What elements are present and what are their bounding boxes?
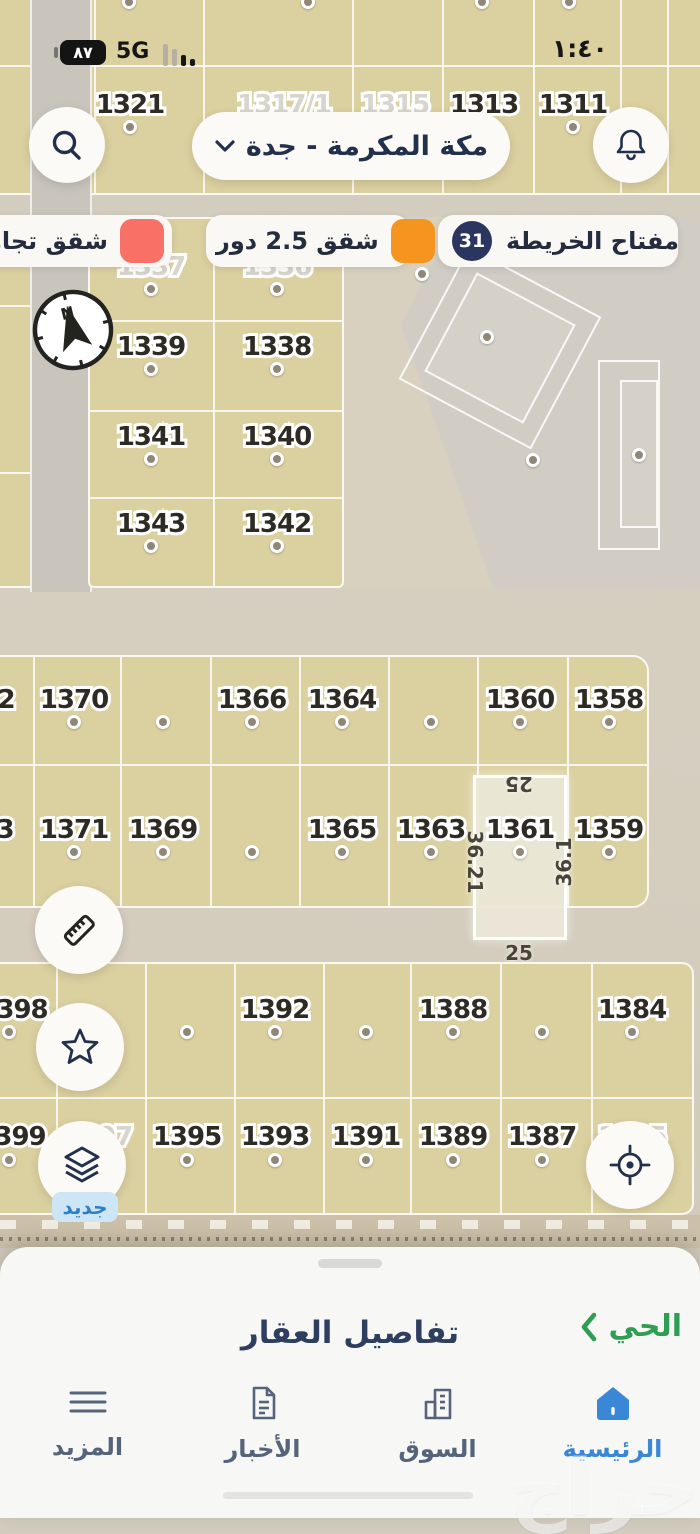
measure-button[interactable]: [35, 886, 123, 974]
parcel-dot: [602, 845, 616, 859]
parcel-dot: [301, 0, 315, 9]
nav-more-label: المزيد: [52, 1433, 123, 1461]
parcel-label[interactable]: 1371: [40, 815, 108, 845]
parcel-label[interactable]: 1360: [486, 685, 554, 715]
parcel-label[interactable]: 1393: [241, 1122, 309, 1152]
parcel-dot: [513, 715, 527, 729]
parcel-dot: [270, 539, 284, 553]
parcel-label[interactable]: 1387: [508, 1122, 576, 1152]
chevron-down-icon: [214, 138, 236, 154]
location-label: مكة المكرمة - جدة: [246, 131, 488, 162]
parcel-label[interactable]: 1361: [486, 815, 554, 845]
parcel-dot: [632, 448, 646, 462]
parcel-dot: [67, 715, 81, 729]
parcel-dot: [67, 845, 81, 859]
parcel-dot: [424, 715, 438, 729]
parcel-dot: [424, 845, 438, 859]
star-icon: [57, 1024, 103, 1070]
parcel-label[interactable]: 1358: [575, 685, 643, 715]
parcel-dot: [268, 1025, 282, 1039]
dimension-top: 25: [505, 772, 533, 796]
parcel-dot: [123, 120, 137, 134]
parcel-dot: [475, 0, 489, 9]
parcel-dot: [625, 1025, 639, 1039]
parcel-dot: [2, 1025, 16, 1039]
news-icon: [242, 1383, 284, 1425]
parcel-dot: [245, 845, 259, 859]
network-type-label: 5G: [116, 39, 149, 64]
parcel-dot: [144, 362, 158, 376]
parcel-dot: [513, 845, 527, 859]
locate-icon: [607, 1142, 653, 1188]
parcel-label[interactable]: 1342: [243, 509, 311, 539]
bell-icon: [610, 124, 652, 166]
parcel-label[interactable]: 1321: [96, 90, 164, 120]
nav-item-market[interactable]: السوق: [350, 1375, 525, 1485]
parcel-label[interactable]: 1370: [40, 685, 108, 715]
parcel-dot: [359, 1025, 373, 1039]
nav-item-more[interactable]: المزيد: [0, 1375, 175, 1485]
map-key-count-badge: 31: [452, 221, 492, 261]
legend-commercial-swatch: [120, 219, 164, 263]
dimension-bottom: 25: [505, 941, 533, 965]
parcel-dot: [2, 1153, 16, 1167]
nav-market-label: السوق: [398, 1435, 476, 1463]
parcel-label[interactable]: 398: [0, 995, 48, 1025]
parcel-dot: [180, 1153, 194, 1167]
legend-apartments-label: شقق 2.5 دور: [216, 227, 379, 255]
parcel-dot: [446, 1153, 460, 1167]
favorites-button[interactable]: [36, 1003, 124, 1091]
parcel-label[interactable]: 2: [0, 685, 15, 715]
parcel-label[interactable]: 1364: [308, 685, 376, 715]
layers-new-badge: جديد: [52, 1192, 118, 1222]
parcel-dot: [270, 362, 284, 376]
parcel-label[interactable]: 1369: [129, 815, 197, 845]
parcel-dot: [270, 452, 284, 466]
legend-commercial-label: شقق تجاري: [0, 227, 108, 255]
status-bar: ٨٧ 5G ١:٤٠: [0, 28, 700, 76]
parcel-label[interactable]: 1365: [308, 815, 376, 845]
parcel-dot: [156, 715, 170, 729]
parcel-label[interactable]: 1311: [539, 90, 607, 120]
parcel-dot: [526, 453, 540, 467]
parcel-label[interactable]: 1384: [598, 995, 666, 1025]
legend-chip-commercial[interactable]: شقق تجاري: [0, 215, 172, 267]
parcel-label[interactable]: 1395: [153, 1122, 221, 1152]
home-icon: [592, 1383, 634, 1425]
parcel-dot: [535, 1025, 549, 1039]
layers-icon: [58, 1141, 106, 1189]
property-details-title: تفاصيل العقار: [0, 1315, 700, 1351]
dimension-right: 36.1: [552, 837, 576, 886]
watermark-logo: حراج: [510, 1444, 698, 1534]
compass[interactable]: N: [31, 288, 115, 372]
nav-news-label: الأخبار: [224, 1435, 300, 1463]
location-selector[interactable]: مكة المكرمة - جدة: [192, 112, 510, 180]
parcel-dot: [335, 845, 349, 859]
parcel-dot: [144, 452, 158, 466]
locate-button[interactable]: [586, 1121, 674, 1209]
parcel-label[interactable]: 399: [0, 1122, 46, 1152]
legend-chip-apartments[interactable]: شقق 2.5 دور: [206, 215, 410, 267]
notifications-button[interactable]: [593, 107, 669, 183]
parcel-dot: [566, 120, 580, 134]
parcel-dot: [359, 1153, 373, 1167]
home-indicator: [223, 1492, 473, 1499]
parcel-dot: [270, 282, 284, 296]
parcel-dot: [156, 845, 170, 859]
parcel-dot: [535, 1153, 549, 1167]
parcel-label[interactable]: 1359: [575, 815, 643, 845]
search-button[interactable]: [29, 107, 105, 183]
search-icon: [47, 125, 87, 165]
parcel-label[interactable]: 1339: [117, 332, 185, 362]
battery-cap: [54, 47, 58, 58]
more-icon: [66, 1383, 110, 1423]
map-key-chip[interactable]: 31 مفتاح الخريطة: [438, 215, 678, 267]
dimension-left: 36.21: [463, 830, 487, 893]
battery-indicator: ٨٧: [60, 40, 106, 65]
legend-apartments-swatch: [391, 219, 435, 263]
parcel-label[interactable]: 1340: [243, 422, 311, 452]
parcel-dot: [122, 0, 136, 9]
parcel-dot: [602, 715, 616, 729]
ruler-icon: [56, 907, 102, 953]
parcel-label[interactable]: 1343: [117, 509, 185, 539]
parcel-label[interactable]: 1366: [218, 685, 286, 715]
parcel-dot: [245, 715, 259, 729]
clock: ١:٤٠: [552, 34, 608, 63]
parcel-label[interactable]: 3: [0, 815, 14, 845]
parcel-dot: [268, 1153, 282, 1167]
parcel-dot: [180, 1025, 194, 1039]
parcel-dot: [446, 1025, 460, 1039]
parcel-dot: [335, 715, 349, 729]
parcel-dot: [480, 330, 494, 344]
nav-item-news[interactable]: الأخبار: [175, 1375, 350, 1485]
sheet-drag-handle[interactable]: [318, 1259, 382, 1268]
parcel-label[interactable]: 1363: [397, 815, 465, 845]
parcel-dot: [562, 0, 576, 9]
signal-bars-icon: [163, 44, 195, 66]
parcel-label[interactable]: 1388: [419, 995, 487, 1025]
parcel-label[interactable]: 1391: [332, 1122, 400, 1152]
parcel-label[interactable]: 1341: [117, 422, 185, 452]
app-screen: { "status_bar": { "battery": "٨٧", "netw…: [0, 0, 700, 1518]
parcel-label[interactable]: 1389: [419, 1122, 487, 1152]
map-key-label: مفتاح الخريطة: [506, 227, 679, 255]
parcel-dot: [144, 282, 158, 296]
parcel-dot: [415, 267, 429, 281]
parcel-dot: [144, 539, 158, 553]
market-icon: [417, 1383, 459, 1425]
parcel-label[interactable]: 1392: [241, 995, 309, 1025]
parcel-label[interactable]: 1338: [243, 332, 311, 362]
